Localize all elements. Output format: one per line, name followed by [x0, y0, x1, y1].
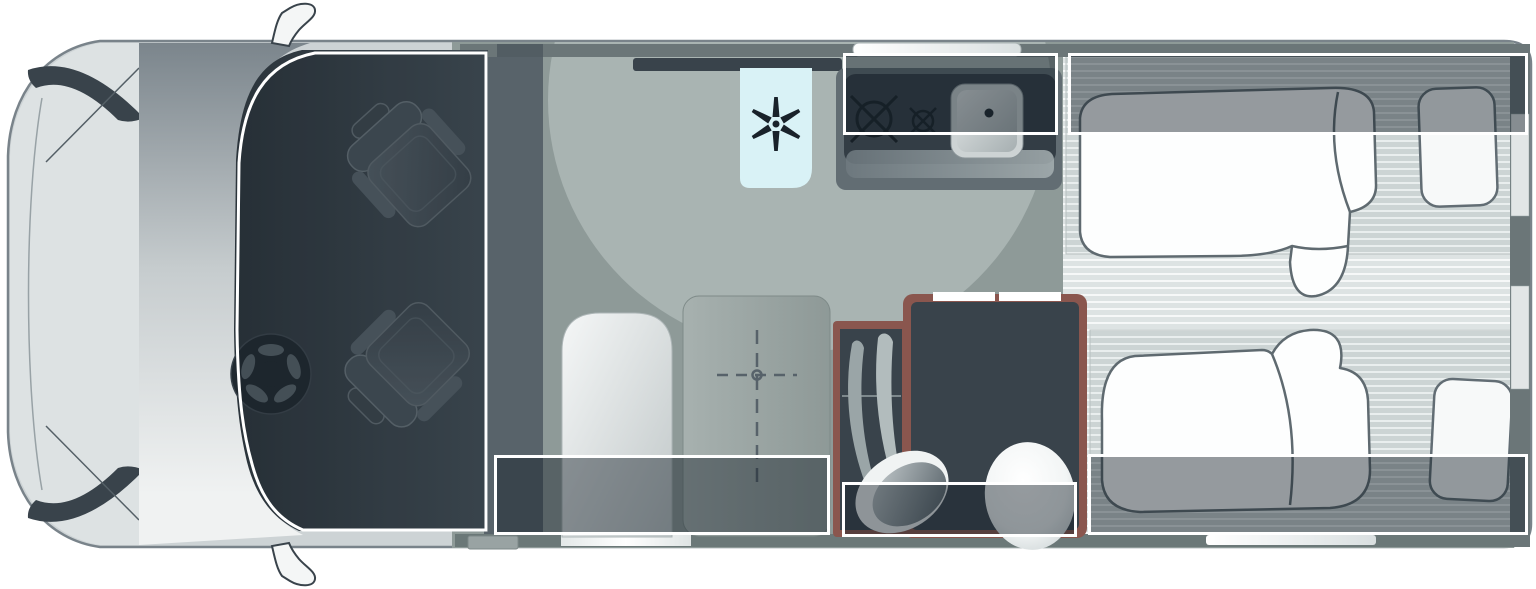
rear-window-bottom [1511, 286, 1529, 389]
kitchen-zone[interactable] [843, 53, 1058, 135]
side-mirror-top [272, 4, 315, 46]
bathroom-zone[interactable] [842, 482, 1077, 537]
motorhome-floorplan [0, 0, 1536, 589]
refrigerator [740, 68, 812, 188]
bathroom-door-gap [933, 292, 995, 301]
cab-zone-outline[interactable] [237, 53, 486, 530]
dinette-zone[interactable] [494, 455, 830, 535]
side-mirror-bottom [272, 543, 315, 585]
bottom-window [1206, 535, 1376, 545]
rear-bed-top-zone[interactable] [1068, 53, 1528, 135]
rear-bed-bottom-zone[interactable] [1088, 454, 1528, 535]
entry-step [468, 536, 518, 549]
wall-top-dark-segment [497, 44, 543, 57]
bathroom-door-gap [999, 292, 1061, 301]
